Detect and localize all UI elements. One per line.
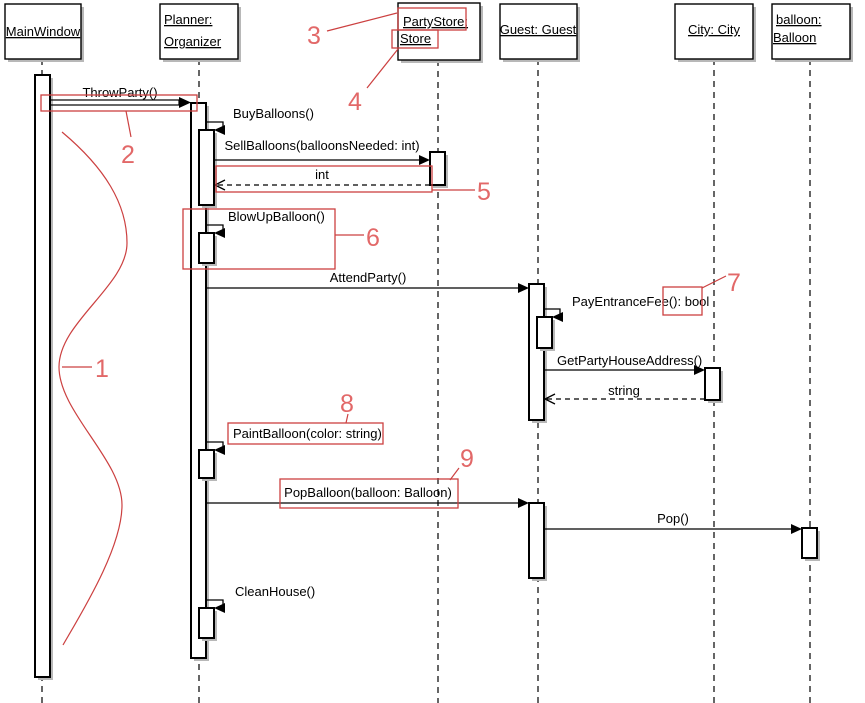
message-label: PayEntranceFee(): bool bbox=[572, 294, 709, 309]
activation-city bbox=[705, 368, 720, 400]
message-label: AttendParty() bbox=[330, 270, 407, 285]
message-label: CleanHouse() bbox=[235, 584, 315, 599]
message-label: BuyBalloons() bbox=[233, 106, 314, 121]
lifeline-head-label: Store bbox=[400, 31, 431, 46]
activation-guest-payentrancefee bbox=[537, 317, 552, 348]
message-label: PopBalloon(balloon: Balloon) bbox=[284, 485, 452, 500]
lifeline-head-city: City: City bbox=[675, 4, 756, 62]
activation-planner-blowupballoon bbox=[199, 233, 214, 263]
activation-mainwindow bbox=[35, 75, 50, 677]
activation-guest-attendparty bbox=[529, 284, 544, 420]
lifeline-head-label: Guest: Guest bbox=[500, 22, 577, 37]
sequence-diagram-page: MainWindow Planner: Organizer PartyStore… bbox=[0, 0, 865, 703]
lifeline-head-label: PartyStore: bbox=[403, 14, 468, 29]
activation-balloon bbox=[802, 528, 817, 558]
lifeline-head-label: MainWindow bbox=[6, 24, 81, 39]
lifeline-head-label: Organizer bbox=[164, 34, 222, 49]
message-label: BlowUpBalloon() bbox=[228, 209, 325, 224]
lifeline-head-planner: Planner: Organizer bbox=[160, 4, 241, 62]
message-label: Pop() bbox=[657, 511, 689, 526]
lifeline-head-label: City: City bbox=[688, 22, 741, 37]
callout-number: 7 bbox=[727, 269, 741, 297]
callout-number: 8 bbox=[340, 390, 354, 418]
message-label: PaintBalloon(color: string) bbox=[233, 426, 382, 441]
callout-number: 4 bbox=[348, 88, 362, 116]
callout-number: 9 bbox=[460, 445, 474, 473]
callout-number: 2 bbox=[121, 141, 135, 169]
lifeline-head-partystore: PartyStore: Store bbox=[398, 3, 483, 63]
lifeline-head-mainwindow: MainWindow bbox=[5, 4, 84, 62]
callout-number: 1 bbox=[95, 355, 109, 383]
activation-guest-popballoon bbox=[529, 503, 544, 578]
lifeline-head-balloon: balloon: Balloon bbox=[772, 4, 853, 62]
message-label: SellBalloons(balloonsNeeded: int) bbox=[224, 138, 419, 153]
sequence-diagram-canvas: MainWindow Planner: Organizer PartyStore… bbox=[0, 0, 865, 703]
activation-planner-cleanhouse bbox=[199, 608, 214, 638]
lifeline-head-label: Balloon bbox=[773, 30, 816, 45]
callout-number: 3 bbox=[307, 22, 321, 50]
callout-number: 5 bbox=[477, 178, 491, 206]
message-label: ThrowParty() bbox=[82, 85, 157, 100]
activation-planner-paintballoon bbox=[199, 450, 214, 478]
lifeline-head-label: balloon: bbox=[776, 12, 822, 27]
lifeline-head-label: Planner: bbox=[164, 12, 212, 27]
activation-planner-buyballoons bbox=[199, 130, 214, 205]
message-label: int bbox=[315, 167, 329, 182]
message-label: string bbox=[608, 383, 640, 398]
lifeline-head-guest: Guest: Guest bbox=[500, 4, 580, 62]
message-label: GetPartyHouseAddress() bbox=[557, 353, 702, 368]
callout-number: 6 bbox=[366, 224, 380, 252]
